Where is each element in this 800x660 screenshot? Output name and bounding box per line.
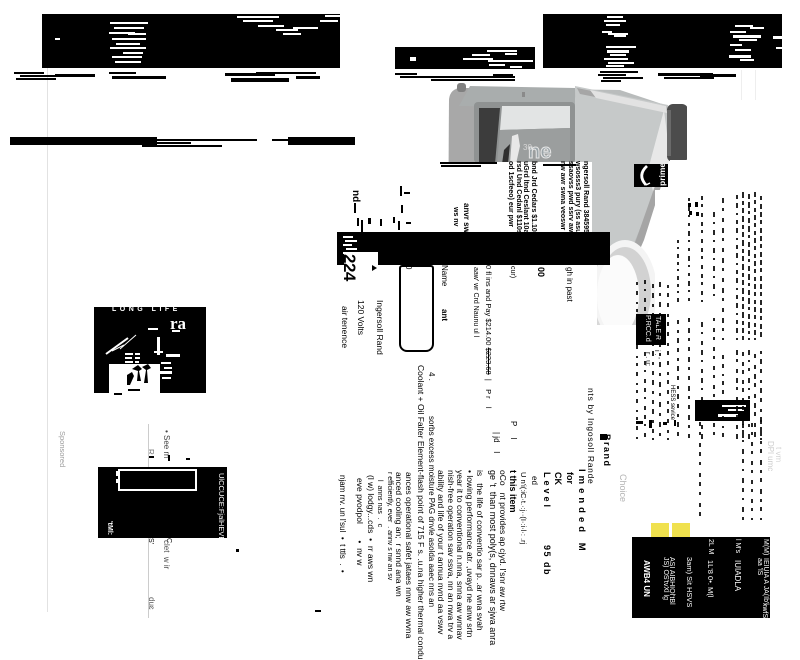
svg-text:prime: prime [657,164,667,186]
svg-text:30: 30 [523,143,532,152]
